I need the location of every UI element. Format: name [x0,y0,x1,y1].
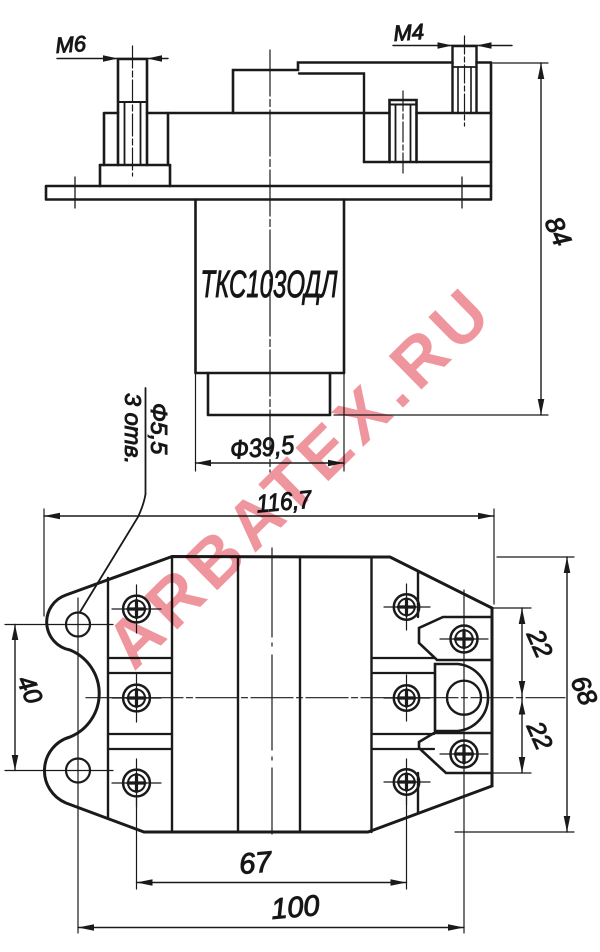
svg-text:40: 40 [11,671,48,708]
svg-text:22: 22 [520,624,557,662]
svg-text:М4: М4 [393,19,425,46]
svg-text:М6: М6 [55,31,88,58]
svg-text:3 отв.: 3 отв. [120,393,146,464]
svg-text:68: 68 [565,671,600,710]
svg-text:67: 67 [238,846,275,881]
svg-text:84: 84 [539,212,578,251]
svg-text:ТКС103ОДЛ: ТКС103ОДЛ [201,264,339,306]
svg-text:100: 100 [270,890,321,926]
svg-text:Ф5,5: Ф5,5 [146,403,172,455]
svg-text:22: 22 [520,716,557,754]
